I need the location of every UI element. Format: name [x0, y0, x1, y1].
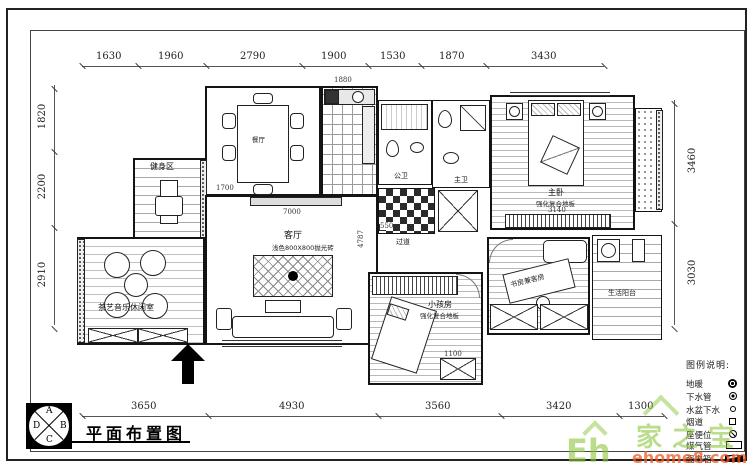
dim-inner-dining: 1700: [216, 184, 234, 192]
drain-pipe-icon: [729, 392, 737, 400]
window: [510, 92, 610, 98]
dim-inner-kids: 1100: [444, 350, 462, 358]
dim-chain-right-line: [674, 100, 675, 325]
dining-chair: [222, 113, 236, 129]
coffee-table: [265, 300, 301, 313]
compass-letter-bottom: C: [46, 435, 53, 445]
dining-chair: [290, 113, 304, 129]
dim-top-7: 3430: [531, 51, 556, 62]
room-label-bath-public: 公卫: [394, 172, 408, 180]
dim-chain-left-line: [54, 85, 55, 325]
nightstand-lamp: [592, 106, 603, 117]
master-radiator: [505, 214, 611, 228]
room-label-service-balcony: 生活阳台: [608, 288, 636, 298]
dim-top-1: 1630: [96, 51, 121, 62]
watermark-eh: Eh: [566, 432, 611, 469]
basin-drain-icon: [730, 406, 736, 412]
room-sublabel-living: 浅色800X800抛光砖: [272, 242, 334, 252]
room-label-dining: 餐厅: [252, 137, 265, 144]
window: [222, 340, 342, 347]
toilet: [438, 110, 452, 128]
dim-inner-living-h: 4787: [357, 230, 365, 248]
kids-wardrobe: [372, 276, 458, 295]
wall-hatch: [77, 239, 85, 343]
legend-header: 图例说明:: [686, 358, 730, 371]
room-label-living: 客厅: [284, 231, 302, 241]
sink: [443, 152, 459, 164]
room-label-master: 主卧: [548, 188, 564, 197]
dim-inner-master: 3140: [548, 206, 566, 214]
shower-stall: [460, 105, 486, 131]
dim-bottom-3: 3560: [425, 401, 450, 412]
room-label-tea: 茶艺音乐休闲室: [98, 303, 154, 312]
entrance-arrow-icon: [171, 344, 205, 361]
study-wardrobe: [490, 304, 538, 330]
dining-chair: [253, 184, 273, 195]
pillow: [531, 103, 555, 116]
dim-left-2: 2200: [37, 174, 48, 199]
nightstand-lamp: [509, 106, 520, 117]
room-sublabel-kids: 强化复合地板: [420, 310, 459, 320]
tv-console: [250, 197, 342, 206]
room-label-bath-master: 主卫: [454, 176, 468, 184]
treadmill-base: [155, 196, 183, 216]
washing-machine-drum: [601, 243, 616, 258]
dining-chair: [222, 145, 236, 161]
dim-top-2: 1960: [158, 51, 183, 62]
dim-inner-hall: 550: [380, 222, 393, 230]
sink: [410, 142, 424, 153]
kitchen-fridge: [325, 90, 339, 104]
dim-left-1: 1820: [37, 104, 48, 129]
dining-chair: [290, 145, 304, 161]
dim-top-4: 1900: [321, 51, 346, 62]
kids-cabinet: [440, 358, 476, 380]
dim-left-3: 2910: [37, 262, 48, 287]
legend-label: 下水管: [686, 391, 712, 403]
compass-letter-top: A: [46, 406, 53, 416]
toilet: [386, 140, 399, 157]
study-wardrobe: [540, 304, 588, 330]
compass-letter-left: D: [33, 421, 40, 431]
wall-hatch: [656, 110, 663, 210]
shoe-cabinet: [88, 328, 138, 343]
dim-top-5: 1530: [380, 51, 405, 62]
dim-bottom-4: 3420: [546, 401, 571, 412]
floor-plan-sheet: 1630 1960 2790 1900 1530 1870 3430 3650 …: [0, 0, 753, 469]
floor-heating-icon: [728, 379, 737, 388]
sofa-armchair: [336, 308, 352, 330]
tea-chair: [104, 252, 130, 278]
dining-chair: [253, 93, 273, 104]
watermark-site: ehome8.com: [632, 448, 747, 467]
compass-letter-right: B: [60, 421, 67, 431]
dim-right-2: 3030: [687, 260, 698, 285]
shoe-cabinet: [138, 328, 188, 343]
legend-label: 地暖: [686, 378, 703, 390]
room-label-kids: 小孩房: [428, 300, 452, 309]
dim-bottom-2: 4930: [279, 401, 304, 412]
tea-table: [124, 273, 148, 297]
dim-right-1: 3460: [687, 148, 698, 173]
sofa-armchair: [216, 308, 232, 330]
dim-chain-bottom-line: [82, 416, 664, 417]
hall-cabinet: [438, 190, 478, 232]
rug-center-medallion: [288, 271, 298, 281]
bathtub: [381, 104, 428, 130]
entrance-arrow-stem: [182, 360, 194, 384]
dim-top-6: 1870: [439, 51, 464, 62]
pillow: [557, 103, 581, 116]
dim-top-3: 2790: [240, 51, 265, 62]
drawing-title-underline: [72, 441, 190, 443]
dim-bottom-1: 3650: [131, 401, 156, 412]
room-label-hall: 过道: [396, 238, 410, 246]
legend-label: 水盆下水: [686, 404, 720, 416]
dim-inner-living-w: 7000: [283, 208, 301, 216]
sofa: [232, 316, 334, 338]
dim-chain-top-line: [82, 66, 604, 67]
kitchen-sink: [352, 91, 364, 103]
compass: A B C D: [26, 403, 72, 449]
tea-chair: [140, 250, 166, 276]
kitchen-counter-side: [362, 106, 375, 164]
room-label-fitness: 健身区: [150, 162, 174, 171]
water-heater: [632, 239, 645, 262]
dim-inner-kitchen: 1880: [334, 76, 352, 84]
